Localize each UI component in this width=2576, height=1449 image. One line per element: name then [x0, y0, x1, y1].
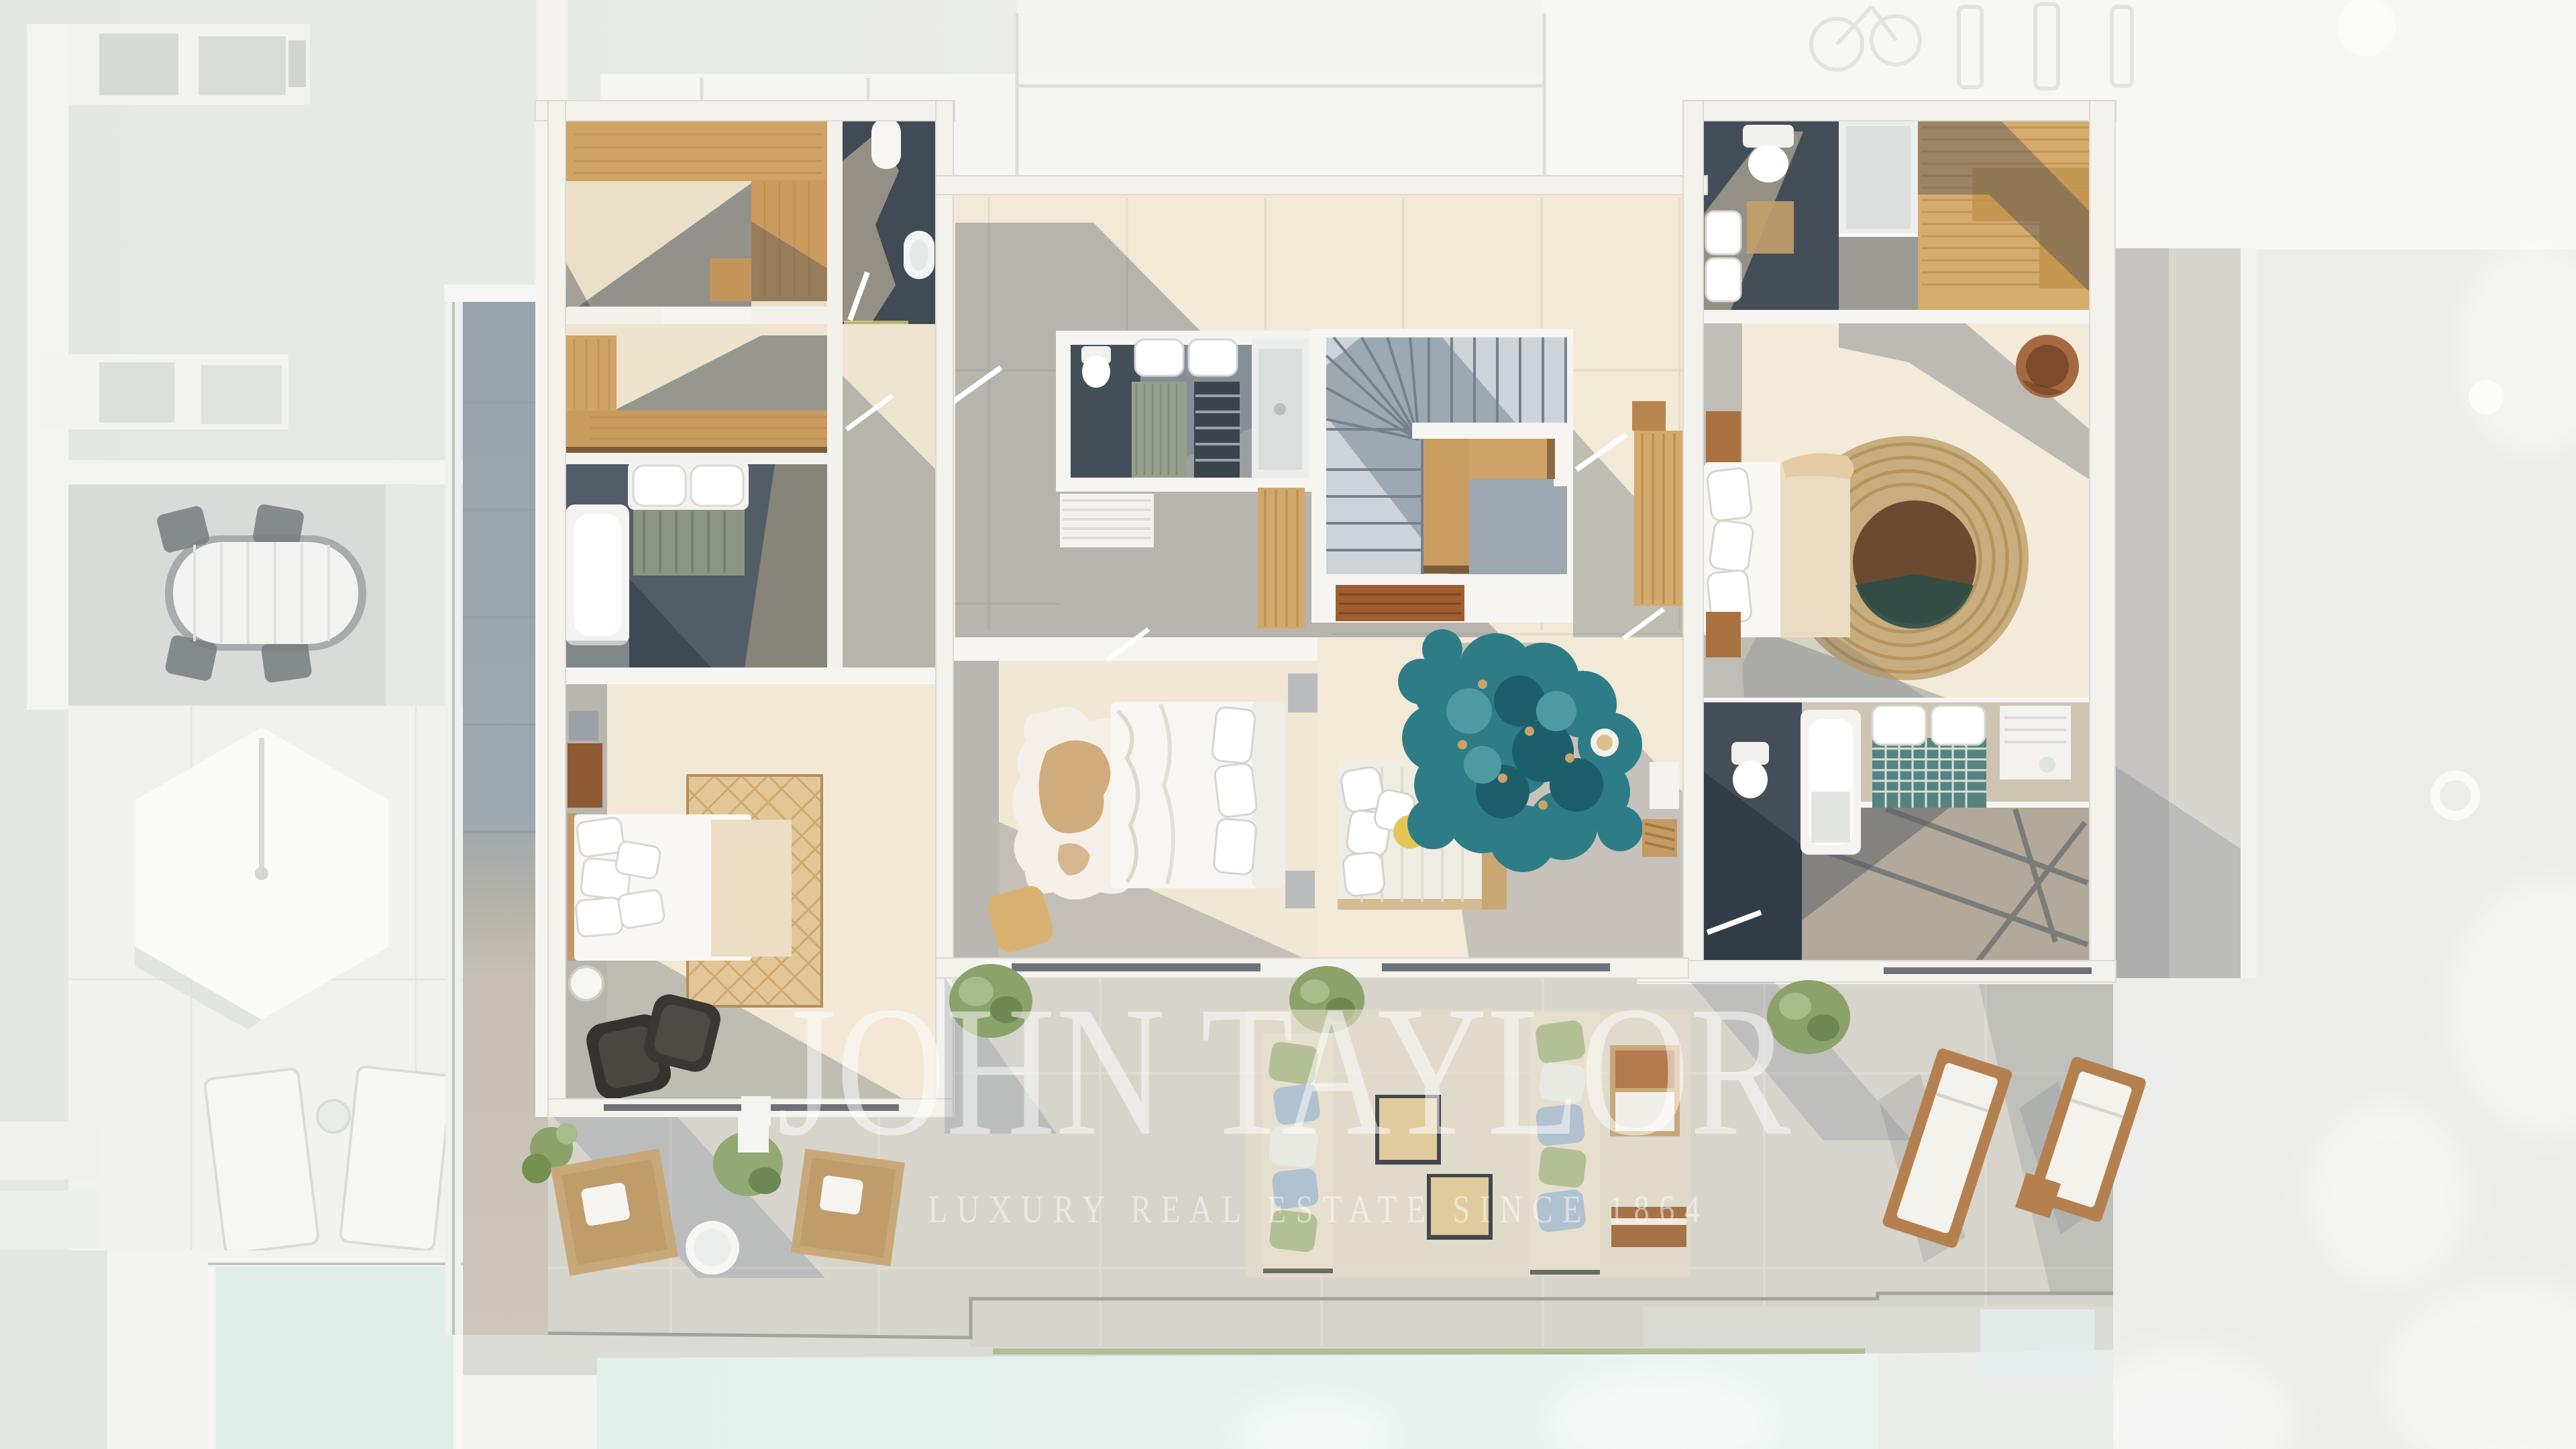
svg-text:LUXURY REAL ESTATE SINCE 1864: LUXURY REAL ESTATE SINCE 1864 [928, 1187, 1710, 1231]
svg-text:JOHN TAYLOR: JOHN TAYLOR [777, 968, 1792, 1175]
